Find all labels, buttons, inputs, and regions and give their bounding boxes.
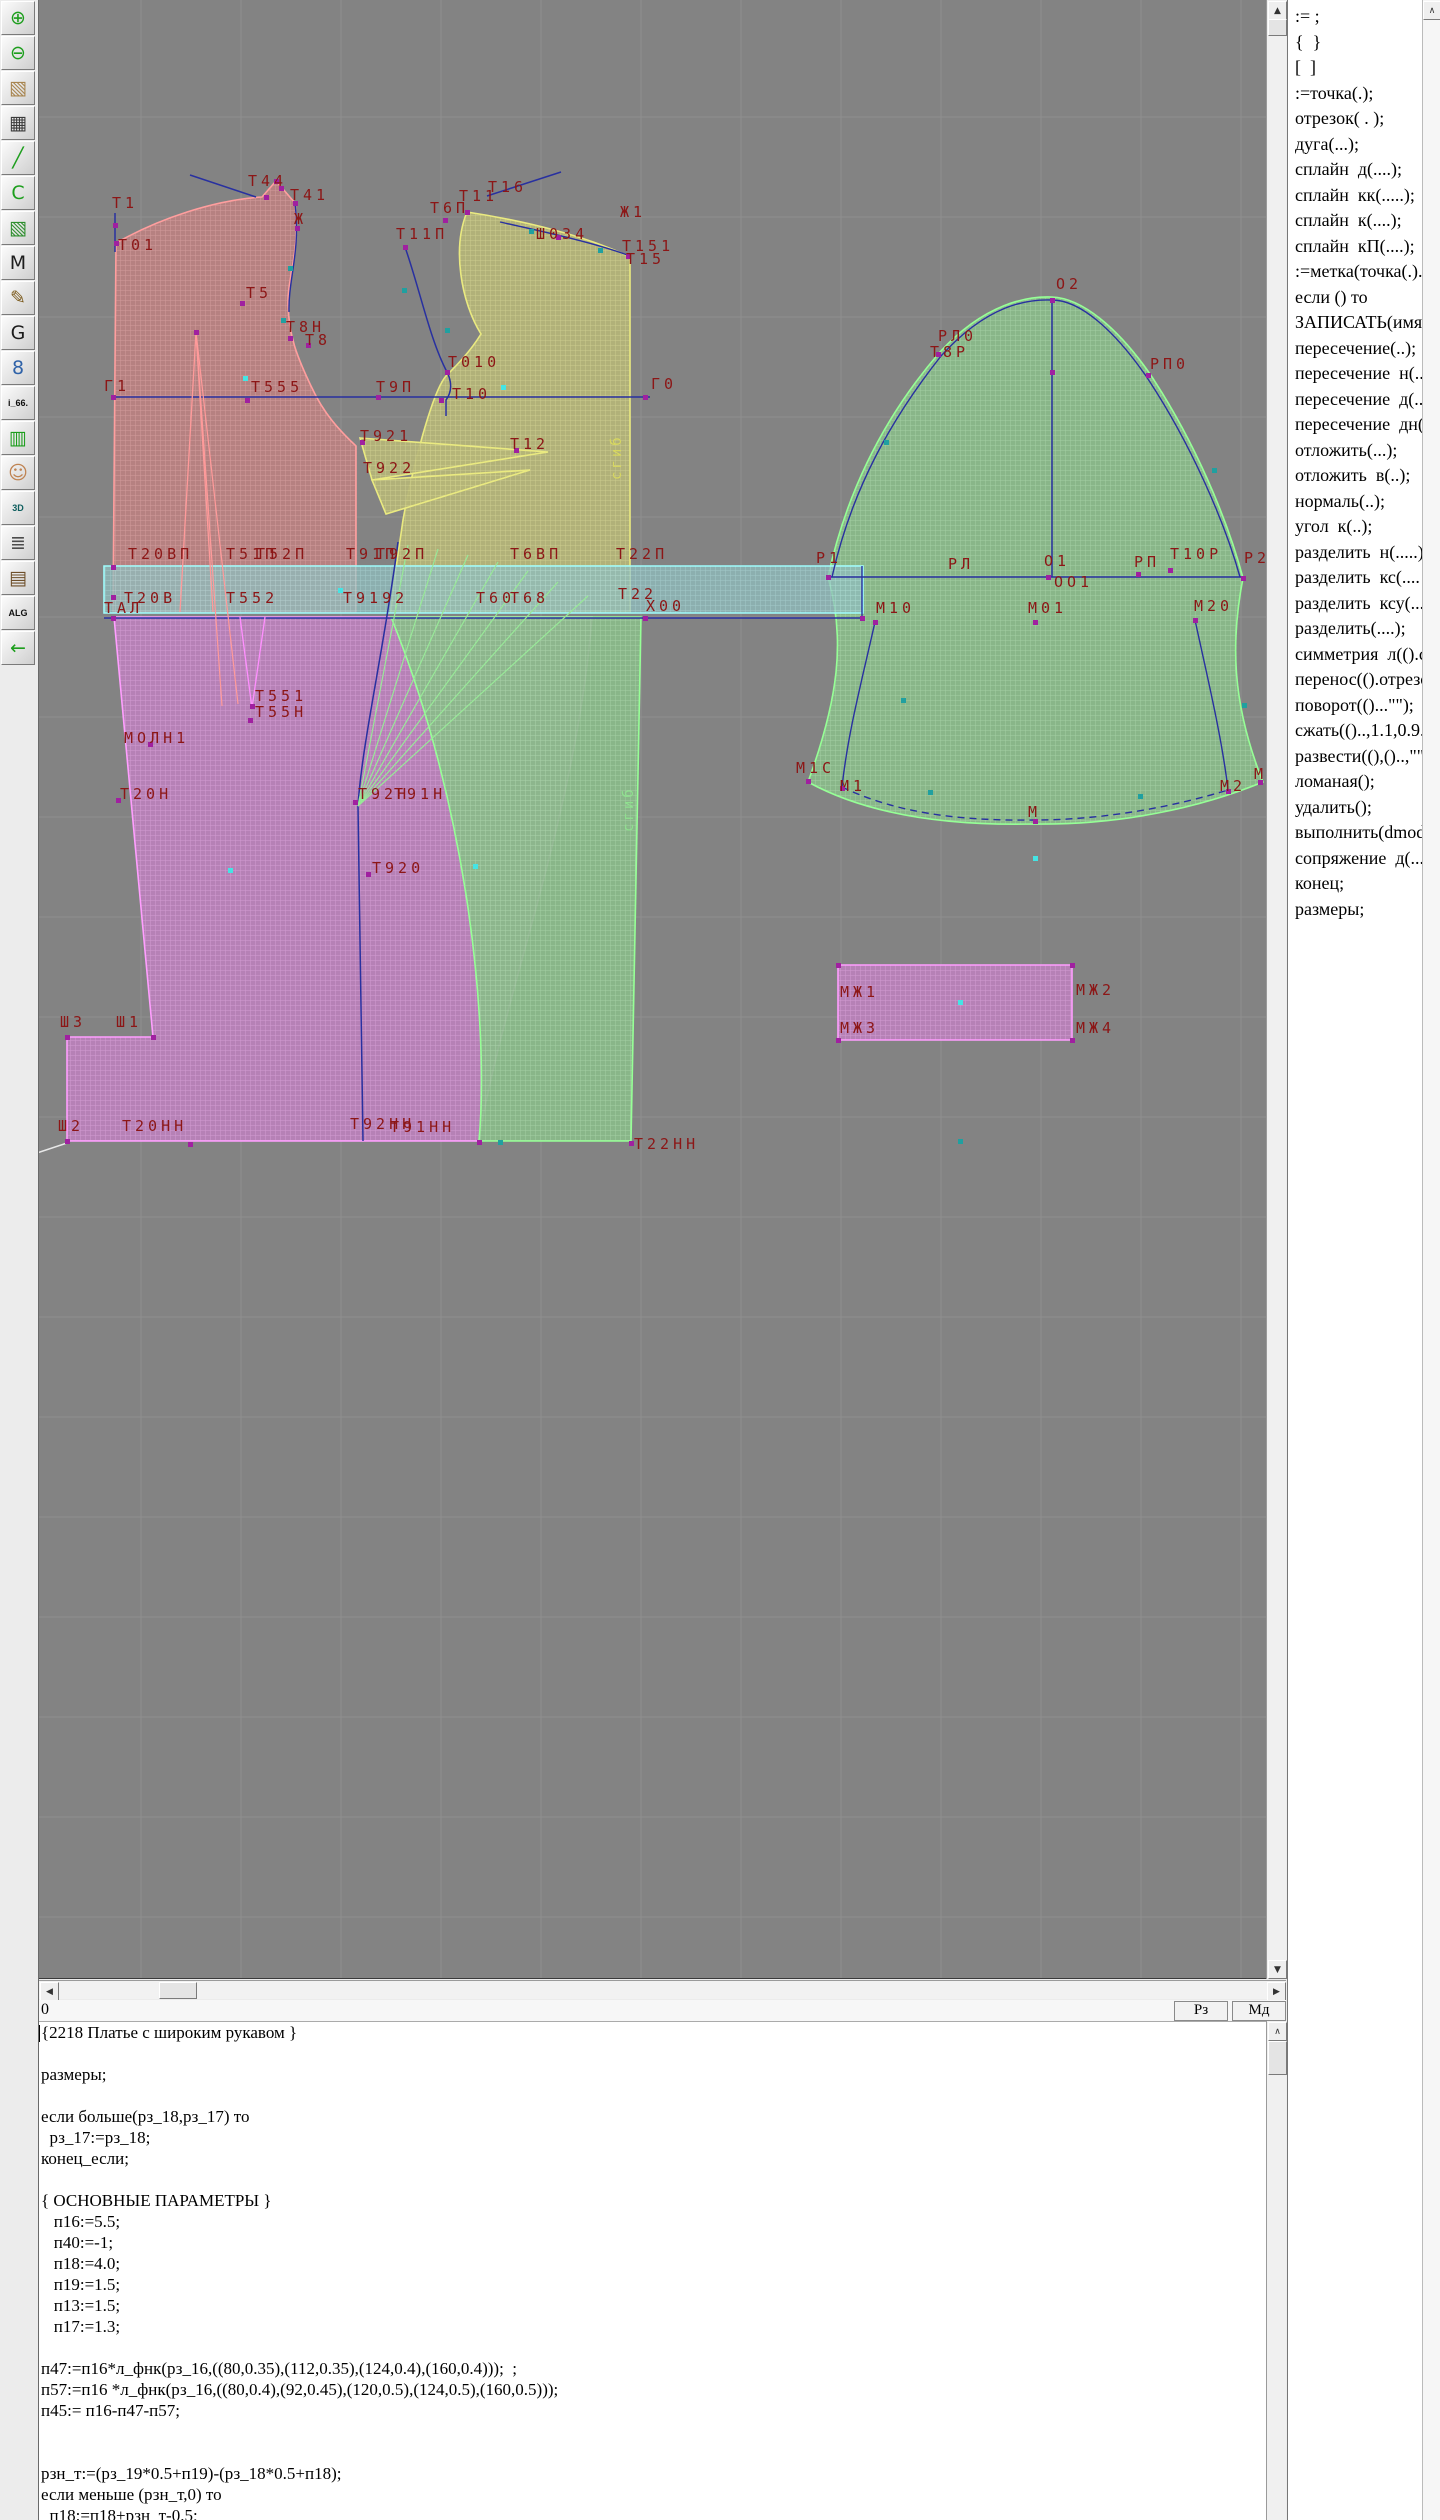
- point-label: Т52П: [256, 545, 308, 563]
- point-marker[interactable]: [1212, 468, 1217, 473]
- i66-button-icon: i_66.: [8, 399, 28, 408]
- point-marker[interactable]: [958, 1000, 963, 1005]
- point-label: Т91Н: [394, 785, 446, 803]
- point-label: Т91НН: [390, 1118, 455, 1136]
- books-button-icon: ▤: [9, 569, 27, 588]
- command-item[interactable]: сплайн кк(.....);: [1295, 183, 1422, 209]
- point-marker[interactable]: [188, 1142, 193, 1147]
- point-label: Т92П: [376, 545, 428, 563]
- arrow-up-icon: ▲: [1274, 6, 1281, 16]
- point-label: МЖ1: [840, 983, 879, 1001]
- tool-3d-button-icon: 3D: [12, 504, 24, 513]
- pattern-sketch-button[interactable]: ▧: [1, 71, 35, 105]
- point-marker[interactable]: [151, 1035, 156, 1040]
- point-marker[interactable]: [1050, 370, 1055, 375]
- point-marker[interactable]: [860, 616, 865, 621]
- command-item[interactable]: если () то: [1295, 285, 1422, 311]
- point-label: Т6ВП: [510, 545, 562, 563]
- point-marker[interactable]: [1033, 856, 1038, 861]
- status-value: 0: [41, 2001, 49, 2019]
- point-marker[interactable]: [65, 1139, 70, 1144]
- code-line: п16:=5.5;: [39, 2211, 1266, 2232]
- code-line: п47:=п16*л_фнк(рз_16,((80,0.35),(112,0.3…: [39, 2358, 1266, 2379]
- command-item[interactable]: выполнить(dmod: [1295, 820, 1422, 846]
- point-label: РП: [1134, 553, 1160, 571]
- point-marker[interactable]: [501, 385, 506, 390]
- zoom-in-button-icon: ⊕: [10, 9, 26, 28]
- point-marker[interactable]: [1070, 1038, 1075, 1043]
- point-marker[interactable]: [248, 718, 253, 723]
- command-item[interactable]: симметрия л(().с: [1295, 642, 1422, 668]
- ruler-button[interactable]: 8: [1, 351, 35, 385]
- command-item[interactable]: { }: [1295, 30, 1422, 56]
- alg-button-icon: ALG: [9, 609, 28, 618]
- point-marker[interactable]: [836, 963, 841, 968]
- i66-button[interactable]: i_66.: [1, 386, 35, 420]
- segment-tool-button-icon: ╱: [12, 149, 23, 168]
- point-label: Г0: [651, 375, 677, 393]
- drafting-tools-button-icon: ✎: [10, 289, 26, 308]
- point-label: Т10Р: [1170, 545, 1222, 563]
- books-button[interactable]: ▤: [1, 561, 35, 595]
- point-label: Т20ВП: [128, 545, 193, 563]
- point-marker[interactable]: [65, 1035, 70, 1040]
- point-label: Т20Н: [120, 785, 172, 803]
- point-label: О2: [1056, 275, 1082, 293]
- point-marker[interactable]: [1146, 373, 1151, 378]
- text-list-button-icon: ≣: [10, 534, 26, 553]
- scroll-down-button[interactable]: ▼: [1268, 1960, 1287, 1979]
- point-marker[interactable]: [873, 620, 878, 625]
- point-marker[interactable]: [1136, 572, 1141, 577]
- point-label: Т8: [305, 331, 331, 349]
- point-label: Т41: [290, 186, 329, 204]
- command-item[interactable]: отложить(...);: [1295, 438, 1422, 464]
- command-item[interactable]: := ;: [1295, 4, 1422, 30]
- editor-scroll-up-button[interactable]: ∧: [1268, 2022, 1287, 2041]
- code-line: если больше(рз_18,рз_17) то: [39, 2106, 1266, 2127]
- command-item[interactable]: угол к(..);: [1295, 514, 1422, 540]
- point-label: Т20НН: [122, 1117, 187, 1135]
- point-marker[interactable]: [836, 1038, 841, 1043]
- arrow-right-icon: ▶: [1273, 1987, 1280, 1997]
- code-line: п19:=1.5;: [39, 2274, 1266, 2295]
- alg-button[interactable]: ALG: [1, 596, 35, 630]
- point-label: Т12: [510, 435, 549, 453]
- point-marker[interactable]: [901, 698, 906, 703]
- command-item[interactable]: сплайн к(....);: [1295, 208, 1422, 234]
- g-page-button[interactable]: G: [1, 316, 35, 350]
- command-item[interactable]: перенос(().отрезо: [1295, 667, 1422, 693]
- code-line: {2218 Платье с широким рукавом }: [39, 2022, 1266, 2043]
- command-item[interactable]: разделить кс(....: [1295, 565, 1422, 591]
- point-marker[interactable]: [113, 223, 118, 228]
- point-label: РП0: [1150, 355, 1189, 373]
- code-line: { ОСНОВНЫЕ ПАРАМЕТРЫ }: [39, 2190, 1266, 2211]
- point-label: Ш3: [60, 1013, 86, 1031]
- point-label: Т11П: [396, 225, 448, 243]
- code-line: п18:=4.0;: [39, 2253, 1266, 2274]
- tool-3d-button[interactable]: 3D: [1, 491, 35, 525]
- point-marker[interactable]: [439, 398, 444, 403]
- panel-scroll-up-button[interactable]: ∧: [1423, 1, 1440, 20]
- command-panel-scrollbar[interactable]: ∧: [1422, 0, 1440, 2520]
- point-label: Ж: [294, 210, 307, 228]
- code-line: если меньше (рзн_т,0) то: [39, 2484, 1266, 2505]
- point-label: Р1: [816, 549, 842, 567]
- point-marker[interactable]: [884, 440, 889, 445]
- command-item[interactable]: отложить в(..);: [1295, 463, 1422, 489]
- point-label: Т44: [248, 172, 287, 190]
- scroll-left-button[interactable]: ◀: [40, 1982, 59, 2001]
- code-line: [39, 2421, 1266, 2442]
- command-item[interactable]: [ ]: [1295, 55, 1422, 81]
- code-line: [39, 2169, 1266, 2190]
- point-marker[interactable]: [288, 266, 293, 271]
- point-label: Ш034: [536, 225, 588, 243]
- command-item[interactable]: нормаль(..);: [1295, 489, 1422, 515]
- toolbar: ⊕⊖▧▦╱С▧M✎G8i_66.▥☺3D≣▤ALG←: [0, 0, 39, 2520]
- point-marker[interactable]: [1046, 575, 1051, 580]
- exit-button[interactable]: ←: [1, 631, 35, 665]
- point-marker[interactable]: [245, 398, 250, 403]
- scroll-up-button[interactable]: ▲: [1268, 1, 1287, 20]
- command-item[interactable]: удалить();: [1295, 795, 1422, 821]
- code-line: [39, 2043, 1266, 2064]
- point-marker[interactable]: [1033, 620, 1038, 625]
- point-marker[interactable]: [445, 328, 450, 333]
- point-label: МЖ2: [1076, 981, 1115, 999]
- ruler-button-icon: 8: [12, 359, 24, 378]
- point-marker[interactable]: [111, 565, 116, 570]
- command-item[interactable]: развести((),()..,"": [1295, 744, 1422, 770]
- canvas-horizontal-scrollbar[interactable]: ◀ ▶: [39, 1980, 1286, 1999]
- point-label: ОО1: [1054, 573, 1093, 591]
- point-label: МОЛН1: [124, 729, 189, 747]
- pattern-drawing[interactable]: Т1Т01Т44Т41ЖТ5Т8НТ8Г1Т555Т9ПТ921Т922Т11П…: [39, 0, 1266, 1978]
- canvas-hscroll-thumb[interactable]: [159, 1982, 197, 1999]
- point-label: Т5: [246, 284, 272, 302]
- code-editor[interactable]: {2218 Платье с широким рукавом } размеры…: [39, 2021, 1266, 2520]
- command-item[interactable]: поворот(()..."");: [1295, 693, 1422, 719]
- point-marker[interactable]: [194, 330, 199, 335]
- editor-vscroll-thumb[interactable]: [1268, 2041, 1287, 2075]
- point-label: Т921: [360, 427, 412, 445]
- point-label: ТАЛ: [104, 599, 143, 617]
- point-label: Т555: [251, 378, 303, 396]
- point-marker[interactable]: [228, 868, 233, 873]
- text-cursor: [39, 2025, 40, 2042]
- point-marker[interactable]: [240, 301, 245, 306]
- cad-application-window: ⊕⊖▧▦╱С▧M✎G8i_66.▥☺3D≣▤ALG← Т1Т01Т44Т41ЖТ…: [0, 0, 1440, 2520]
- point-marker[interactable]: [477, 1140, 482, 1145]
- command-item[interactable]: :=точка(.);: [1295, 81, 1422, 107]
- point-marker[interactable]: [643, 616, 648, 621]
- point-label: Т9192: [343, 589, 408, 607]
- command-item[interactable]: отрезок( . );: [1295, 106, 1422, 132]
- point-label: М2: [1220, 777, 1246, 795]
- point-marker[interactable]: [243, 376, 248, 381]
- point-label: Ш1: [116, 1013, 142, 1031]
- size-table-button[interactable]: ▥: [1, 421, 35, 455]
- point-marker[interactable]: [473, 864, 478, 869]
- code-line: [39, 2337, 1266, 2358]
- pattern-piece-button-icon: ▧: [9, 219, 27, 238]
- canvas-vscroll-thumb[interactable]: [1268, 19, 1287, 36]
- point-marker[interactable]: [498, 1140, 503, 1145]
- grid-table-button[interactable]: ▦: [1, 106, 35, 140]
- point-label: Т68: [510, 589, 549, 607]
- point-marker[interactable]: [1242, 703, 1247, 708]
- point-marker[interactable]: [529, 229, 534, 234]
- point-label: Т10: [452, 385, 491, 403]
- drafting-tools-button[interactable]: ✎: [1, 281, 35, 315]
- point-label: Т8Р: [930, 343, 969, 361]
- command-item[interactable]: размеры;: [1295, 897, 1422, 923]
- point-marker[interactable]: [1168, 568, 1173, 573]
- command-item[interactable]: дуга(...);: [1295, 132, 1422, 158]
- point-marker[interactable]: [288, 336, 293, 341]
- command-item[interactable]: сплайн кП(....);: [1295, 234, 1422, 260]
- point-label: Т01: [118, 236, 157, 254]
- status-buttons: РзМд: [1174, 2001, 1286, 2021]
- command-item[interactable]: конец;: [1295, 871, 1422, 897]
- point-label: М1: [840, 777, 866, 795]
- command-item[interactable]: пересечение н(..: [1295, 361, 1422, 387]
- point-label: М2Н: [1254, 765, 1266, 783]
- canvas-vertical-scrollbar[interactable]: ▲ ▼: [1266, 0, 1286, 1979]
- command-panel: := ;{ }[ ]:=точка(.);отрезок( . );дуга(.…: [1287, 0, 1422, 2520]
- fold-label: сгиб: [621, 786, 637, 832]
- point-label: Ш2: [58, 1117, 84, 1135]
- md-button[interactable]: Мд: [1232, 2001, 1286, 2021]
- code-line: рзн_т:=(рз_19*0.5+п19)-(рз_18*0.5+п18);: [39, 2463, 1266, 2484]
- point-label: М10: [876, 599, 915, 617]
- m-page-button[interactable]: M: [1, 246, 35, 280]
- code-line: п18:=п18+рзн_т-0.5;: [39, 2505, 1266, 2520]
- point-marker[interactable]: [643, 395, 648, 400]
- code-line: п13:=1.5;: [39, 2295, 1266, 2316]
- curve-page-button[interactable]: С: [1, 176, 35, 210]
- point-label: РЛ: [948, 555, 974, 573]
- command-item[interactable]: пересечение дн(: [1295, 412, 1422, 438]
- point-marker[interactable]: [264, 195, 269, 200]
- command-item[interactable]: разделить н(.....): [1295, 540, 1422, 566]
- zoom-out-button-icon: ⊖: [10, 44, 26, 63]
- command-item[interactable]: пересечение д(..: [1295, 387, 1422, 413]
- point-label: Г1: [104, 377, 130, 395]
- point-marker[interactable]: [806, 779, 811, 784]
- code-line: п40:=-1;: [39, 2232, 1266, 2253]
- command-item[interactable]: ЗАПИСАТЬ(имя=: [1295, 310, 1422, 336]
- point-label: Р2: [1244, 549, 1266, 567]
- zoom-out-button[interactable]: ⊖: [1, 36, 35, 70]
- point-marker[interactable]: [403, 245, 408, 250]
- status-bar: 0 РзМд: [39, 2000, 1286, 2021]
- portrait-button[interactable]: ☺: [1, 456, 35, 490]
- code-line: [39, 2442, 1266, 2463]
- point-label: М1С: [796, 759, 835, 777]
- point-label: Т9П: [376, 378, 415, 396]
- command-item[interactable]: сплайн д(....);: [1295, 157, 1422, 183]
- command-item[interactable]: сопряжение д(...: [1295, 846, 1422, 872]
- point-label: Х00: [646, 597, 685, 615]
- code-line: размеры;: [39, 2064, 1266, 2085]
- editor-vertical-scrollbar[interactable]: ∧: [1266, 2021, 1286, 2520]
- m-page-button-icon: M: [10, 254, 26, 273]
- point-marker[interactable]: [111, 395, 116, 400]
- point-label: Т552: [226, 589, 278, 607]
- arrow-up-icon: ∧: [1274, 2027, 1281, 2037]
- point-label: М20: [1194, 597, 1233, 615]
- curve-page-button-icon: С: [11, 184, 24, 203]
- point-marker[interactable]: [443, 218, 448, 223]
- point-marker[interactable]: [1050, 298, 1055, 303]
- point-label: МЖ4: [1076, 1019, 1115, 1037]
- arrow-left-icon: ◀: [46, 1987, 53, 1997]
- scroll-right-button[interactable]: ▶: [1267, 1982, 1286, 2001]
- point-marker[interactable]: [826, 575, 831, 580]
- point-label: Т22П: [616, 545, 668, 563]
- command-item[interactable]: :=метка(точка(.)..: [1295, 259, 1422, 285]
- drawing-canvas[interactable]: Т1Т01Т44Т41ЖТ5Т8НТ8Г1Т555Т9ПТ921Т922Т11П…: [39, 0, 1266, 1979]
- command-item[interactable]: сжать(()..,1.1,0.9.: [1295, 718, 1422, 744]
- code-line: конец_если;: [39, 2148, 1266, 2169]
- command-item[interactable]: ломаная();: [1295, 769, 1422, 795]
- point-marker[interactable]: [1070, 963, 1075, 968]
- segment-tool-button[interactable]: ╱: [1, 141, 35, 175]
- point-marker[interactable]: [1138, 794, 1143, 799]
- fold-label: сгиб: [609, 434, 625, 480]
- command-item[interactable]: разделить(....);: [1295, 616, 1422, 642]
- point-marker[interactable]: [402, 288, 407, 293]
- point-label: Т920: [372, 859, 424, 877]
- point-label: Т010: [448, 353, 500, 371]
- pattern-sketch-button-icon: ▧: [9, 79, 27, 98]
- point-marker[interactable]: [598, 248, 603, 253]
- code-line: п17:=1.3;: [39, 2316, 1266, 2337]
- point-label: МЖ3: [840, 1019, 879, 1037]
- point-marker[interactable]: [366, 872, 371, 877]
- command-item[interactable]: пересечение(..);: [1295, 336, 1422, 362]
- code-line: п57:=п16 *л_фнк(рз_16,((80,0.4),(92,0.45…: [39, 2379, 1266, 2400]
- point-label: Т16: [488, 178, 527, 196]
- zoom-in-button[interactable]: ⊕: [1, 1, 35, 35]
- command-item[interactable]: разделить ксу(...: [1295, 591, 1422, 617]
- code-line: п45:= п16-п47-п57;: [39, 2400, 1266, 2421]
- arrow-up-icon: ∧: [1429, 6, 1436, 16]
- size-table-button-icon: ▥: [9, 429, 27, 448]
- point-label: Т22НН: [634, 1135, 699, 1153]
- point-marker[interactable]: [958, 1139, 963, 1144]
- grid-table-button-icon: ▦: [9, 114, 27, 133]
- code-line: [39, 2085, 1266, 2106]
- text-list-button[interactable]: ≣: [1, 526, 35, 560]
- point-label: Т15: [626, 250, 665, 268]
- pattern-piece-button[interactable]: ▧: [1, 211, 35, 245]
- g-page-button-icon: G: [11, 324, 26, 343]
- rz-button[interactable]: Рз: [1174, 2001, 1228, 2021]
- arrow-down-icon: ▼: [1274, 1965, 1281, 1975]
- portrait-button-icon: ☺: [8, 464, 28, 483]
- point-label: Ж1: [620, 203, 646, 221]
- point-marker[interactable]: [1193, 618, 1198, 623]
- point-label: Т55Н: [255, 703, 307, 721]
- code-line: рз_17:=рз_18;: [39, 2127, 1266, 2148]
- point-label: Т922: [363, 459, 415, 477]
- point-label: О1: [1044, 552, 1070, 570]
- point-marker[interactable]: [1241, 576, 1246, 581]
- point-label: М: [1028, 803, 1041, 821]
- point-label: М01: [1028, 599, 1067, 617]
- exit-button-icon: ←: [10, 639, 26, 658]
- point-label: Т1: [112, 194, 138, 212]
- point-marker[interactable]: [928, 790, 933, 795]
